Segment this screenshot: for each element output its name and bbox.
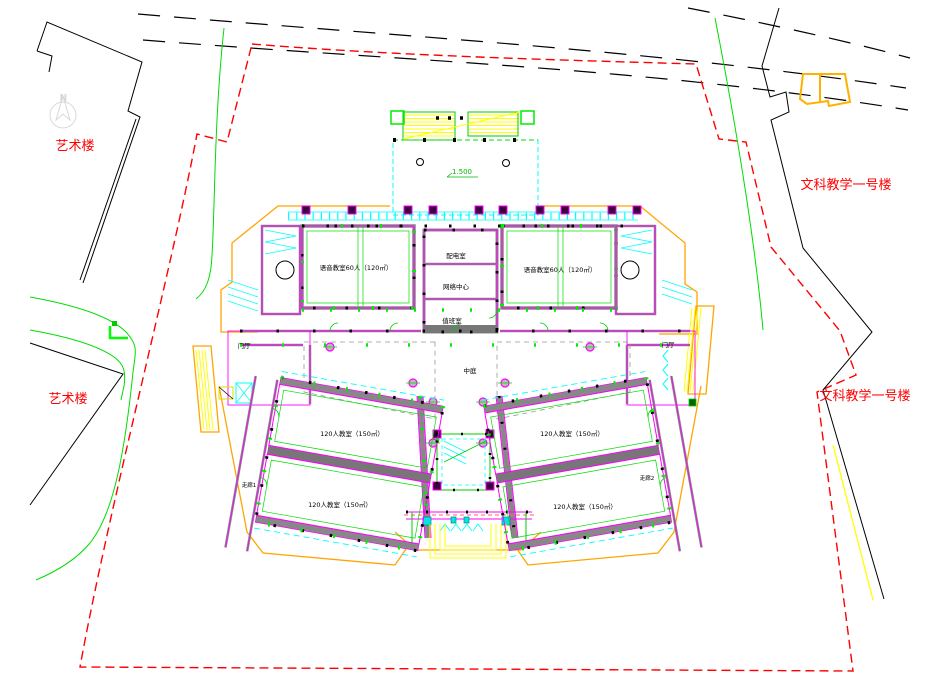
room-label-duty: 值班室 bbox=[442, 316, 462, 325]
site-label-liberal-upper: 文科教学一号楼 bbox=[800, 177, 891, 193]
north-letter: N bbox=[60, 94, 67, 104]
right-classroom-wing bbox=[483, 367, 702, 580]
small-orange-building bbox=[800, 74, 850, 106]
room-label-foyer-left: 门厅 bbox=[238, 341, 252, 350]
room-label-foyer-right: 门厅 bbox=[662, 340, 676, 349]
room-label-atrium: 中庭 bbox=[464, 366, 478, 375]
site-label-liberal-lower: 文科教学一号楼 bbox=[819, 388, 910, 404]
room-label-class-left-lower: 120人教室（150㎡） bbox=[308, 500, 372, 509]
band-columns bbox=[302, 206, 641, 214]
central-stair-room bbox=[433, 430, 494, 490]
room-label-network: 网络中心 bbox=[443, 282, 470, 291]
upper-block bbox=[228, 206, 692, 333]
green-road-lines bbox=[30, 18, 763, 580]
stair-tower-right bbox=[616, 226, 655, 314]
top-entrance: 1.500 bbox=[391, 111, 538, 215]
north-arrow-icon: N bbox=[50, 94, 76, 128]
liberal-arts-building-outline bbox=[762, 8, 884, 600]
cad-site-plan: N bbox=[0, 0, 926, 692]
site-label-art-lower: 艺术楼 bbox=[48, 392, 87, 407]
main-building: 1.500 bbox=[193, 111, 714, 580]
room-label-class-right-upper: 120人教室（150㎡） bbox=[540, 429, 604, 438]
room-label-language-right: 语音教室60人（120㎡） bbox=[524, 265, 597, 274]
room-label-language-left: 语音教室60人（120㎡） bbox=[320, 263, 393, 272]
left-classroom-wing bbox=[225, 367, 444, 580]
room-label-corridor-1: 走廊1 bbox=[242, 481, 257, 489]
site-label-art-upper: 艺术楼 bbox=[55, 139, 94, 154]
room-label-class-right-lower: 120人教室（150㎡） bbox=[553, 502, 617, 511]
room-label-class-left-upper: 120人教室（150㎡） bbox=[320, 429, 384, 438]
room-label-power: 配电室 bbox=[446, 251, 466, 260]
room-label-corridor-2: 走廊2 bbox=[640, 474, 655, 482]
stair-tower-left bbox=[262, 226, 300, 314]
elevation-marker: 1.500 bbox=[452, 168, 472, 176]
